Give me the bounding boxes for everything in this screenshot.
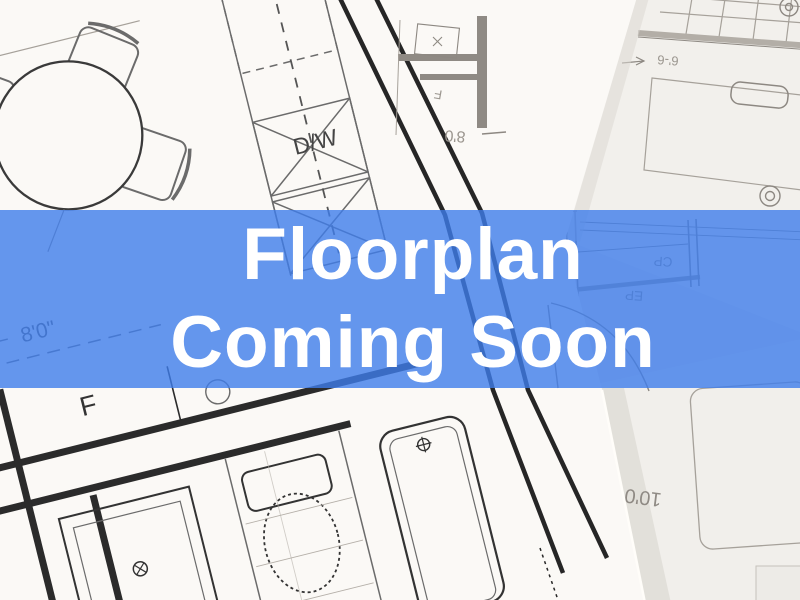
dim-lower-right-label: 10'0 [623, 484, 663, 510]
corner-paper-edge [756, 566, 800, 600]
coming-soon-banner: Floorplan Coming Soon [0, 210, 800, 388]
dim-upper-right-label: 8'0 [444, 126, 466, 144]
banner-title-line1: Floorplan [242, 218, 584, 292]
deck-dim-label: 6'-6 [657, 52, 679, 68]
coming-soon-placeholder: 6'-6 CP [0, 0, 800, 600]
banner-title-line2: Coming Soon [170, 306, 655, 380]
